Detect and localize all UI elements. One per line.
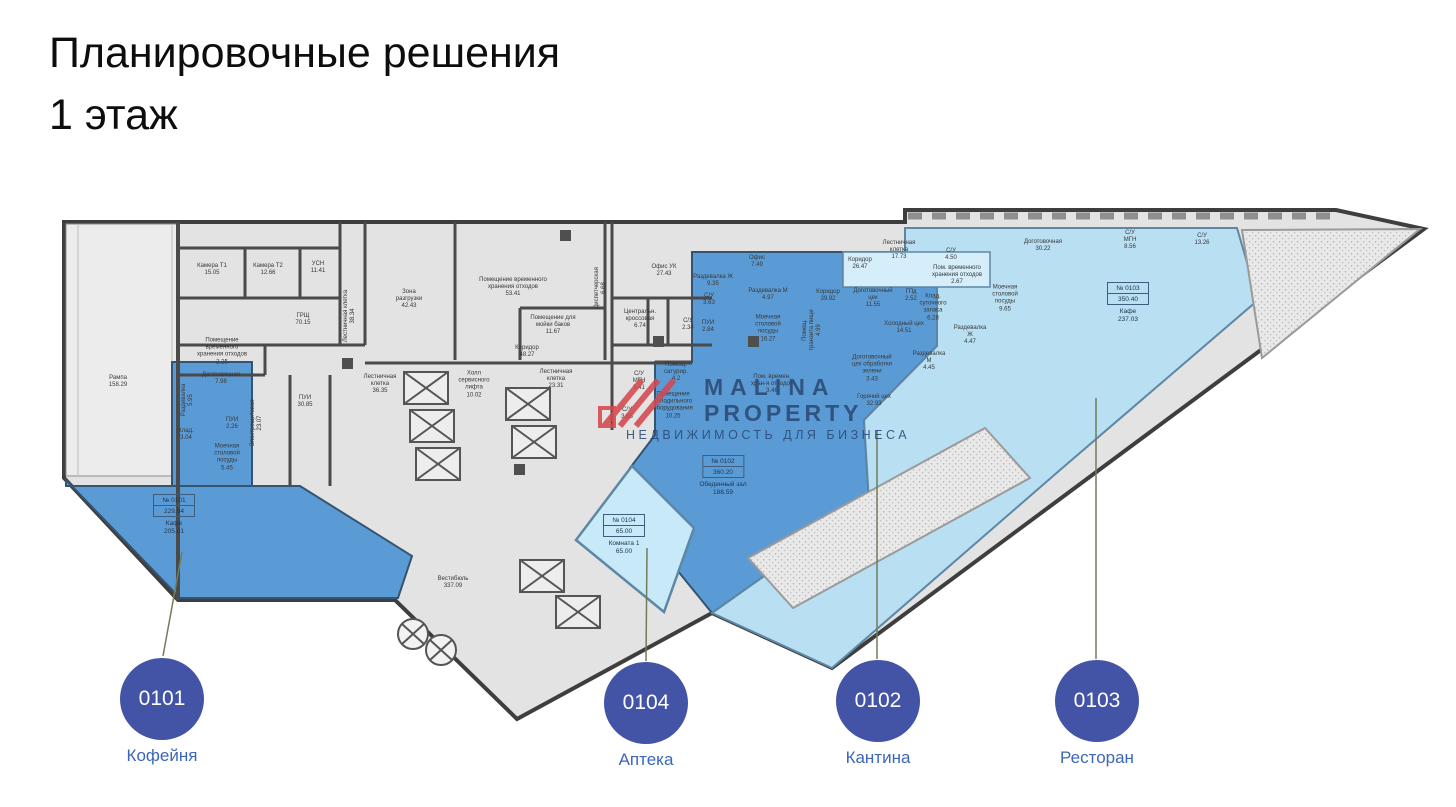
terrace-hatch-right bbox=[1242, 229, 1420, 358]
unit-total-area: 360.20 bbox=[703, 467, 743, 477]
unit-total-area: 229.94 bbox=[154, 506, 194, 516]
unit-total-area: 65.00 bbox=[604, 526, 644, 536]
unit-plan-label-0104: № 010465.00Комната 1 65.00 bbox=[603, 514, 645, 556]
unit-number: № 0104 bbox=[604, 515, 644, 526]
unit-badge-label-0101: Кофейня bbox=[72, 746, 252, 766]
unit-main-room: Обеденный зал 188.59 bbox=[699, 481, 746, 497]
unit-badge-0102[interactable]: 0102 bbox=[836, 660, 920, 742]
leader-line-0104 bbox=[646, 548, 647, 661]
unit-main-room: Кафе 237.03 bbox=[1118, 308, 1138, 324]
unit-0103-corridor bbox=[843, 252, 990, 287]
unit-main-room: Кафе 205.01 bbox=[164, 520, 184, 536]
unit-plan-label-0101: № 0101229.94Кафе 205.01 bbox=[153, 494, 195, 536]
unit-badge-label-0103: Ресторан bbox=[1007, 748, 1187, 768]
ramp-area bbox=[66, 224, 178, 476]
unit-badge-label-0102: Кантина bbox=[788, 748, 968, 768]
unit-badge-0101[interactable]: 0101 bbox=[120, 658, 204, 740]
unit-badge-0103[interactable]: 0103 bbox=[1055, 660, 1139, 742]
floor-plan bbox=[0, 0, 1456, 807]
unit-badge-label-0104: Аптека bbox=[556, 750, 736, 770]
unit-plan-label-0103: № 0103350.40Кафе 237.03 bbox=[1107, 282, 1149, 324]
unit-badge-0104[interactable]: 0104 bbox=[604, 662, 688, 744]
unit-number: № 0102 bbox=[703, 456, 743, 467]
unit-0101-service-block bbox=[172, 362, 252, 486]
unit-number: № 0101 bbox=[154, 495, 194, 506]
unit-main-room: Комната 1 65.00 bbox=[609, 540, 640, 556]
slide-canvas: Планировочные решения 1 этаж bbox=[0, 0, 1456, 807]
unit-plan-label-0102: № 0102360.20Обеденный зал 188.59 bbox=[699, 455, 746, 497]
unit-total-area: 350.40 bbox=[1108, 294, 1148, 304]
unit-number: № 0103 bbox=[1108, 283, 1148, 294]
